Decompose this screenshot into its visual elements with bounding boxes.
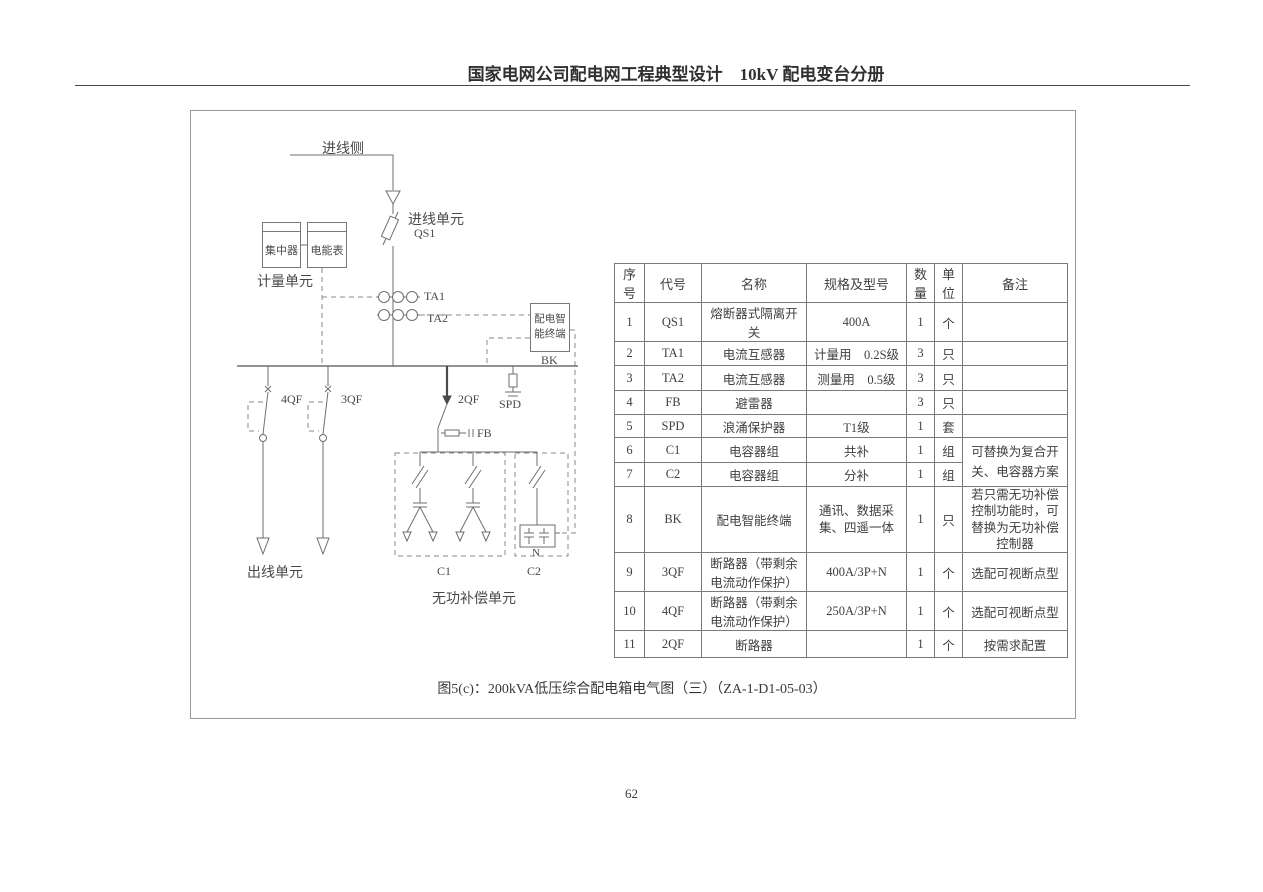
cell-qty: 3 — [907, 391, 935, 415]
qf2-label: 2QF — [458, 392, 479, 407]
capacitor-bank-c1 — [395, 452, 505, 556]
cell-unit: 只 — [935, 391, 963, 415]
cell-remark: 选配可视断点型 — [963, 592, 1068, 631]
breaker-3qf-symbol — [308, 366, 331, 554]
cell-spec: 测量用 0.5级 — [807, 366, 907, 391]
c1-label: C1 — [437, 564, 451, 579]
cell-seq: 2 — [615, 342, 645, 366]
ta1-label: TA1 — [424, 289, 445, 304]
cell-name: 电流互感器 — [702, 366, 807, 391]
reactive-comp-unit-label: 无功补偿单元 — [432, 588, 516, 608]
col-seq: 序号 — [615, 264, 645, 303]
component-table: 序号 代号 名称 规格及型号 数量 单位 备注 1 QS1 熔断器式隔离开关 4… — [614, 263, 1068, 658]
document-page: 国家电网公司配电网工程典型设计 10kV 配电变台分册 — [0, 0, 1263, 892]
cell-code: BK — [645, 487, 702, 553]
table-row: 5 SPD 浪涌保护器 T1级 1 套 — [615, 415, 1068, 438]
cell-unit: 只 — [935, 487, 963, 553]
cell-code: 2QF — [645, 631, 702, 658]
cell-name: 电容器组 — [702, 438, 807, 463]
current-transformer-ta1 — [377, 292, 420, 303]
cell-remark — [963, 415, 1068, 438]
cell-qty: 1 — [907, 553, 935, 592]
cell-name: 断路器（带剩余电流动作保护） — [702, 553, 807, 592]
bk-label: BK — [541, 353, 558, 368]
cell-code: FB — [645, 391, 702, 415]
cell-remark: 若只需无功补偿控制功能时，可替换为无功补偿控制器 — [963, 487, 1068, 553]
outgoing-unit-label: 出线单元 — [247, 562, 303, 582]
cell-name: 配电智能终端 — [702, 487, 807, 553]
cell-remark: 可替换为复合开关、电容器方案 — [963, 438, 1068, 487]
qf4-label: 4QF — [281, 392, 302, 407]
col-unit: 单位 — [935, 264, 963, 303]
cell-spec: 400A — [807, 303, 907, 342]
concentrator-label: 集中器 — [263, 232, 300, 267]
cell-qty: 1 — [907, 303, 935, 342]
cell-unit: 只 — [935, 342, 963, 366]
cell-spec: 400A/3P+N — [807, 553, 907, 592]
page-number: 62 — [0, 786, 1263, 802]
col-code: 代号 — [645, 264, 702, 303]
box-header-strip — [308, 223, 346, 232]
incoming-side-label: 进线侧 — [322, 138, 364, 158]
cell-code: TA2 — [645, 366, 702, 391]
cell-qty: 1 — [907, 487, 935, 553]
cell-seq: 11 — [615, 631, 645, 658]
cell-remark — [963, 366, 1068, 391]
cell-seq: 10 — [615, 592, 645, 631]
breaker-4qf-symbol — [248, 366, 271, 554]
cell-name: 断路器 — [702, 631, 807, 658]
cell-remark: 按需求配置 — [963, 631, 1068, 658]
table-row: 3 TA2 电流互感器 测量用 0.5级 3 只 — [615, 366, 1068, 391]
cell-name: 电流互感器 — [702, 342, 807, 366]
cell-seq: 8 — [615, 487, 645, 553]
ta2-label: TA2 — [427, 311, 448, 326]
cell-name: 电容器组 — [702, 463, 807, 487]
cell-seq: 9 — [615, 553, 645, 592]
col-name: 名称 — [702, 264, 807, 303]
figure-caption: 图5(c)：200kVA低压综合配电箱电气图（三）（ZA-1-D1-05-03） — [190, 678, 1074, 698]
cell-remark — [963, 391, 1068, 415]
cell-seq: 5 — [615, 415, 645, 438]
smart-terminal-box: 配电智能终端 — [530, 303, 570, 352]
cell-seq: 7 — [615, 463, 645, 487]
box-header-strip — [263, 223, 300, 232]
spd-label: SPD — [499, 397, 521, 412]
cell-name: 熔断器式隔离开关 — [702, 303, 807, 342]
cell-unit: 个 — [935, 303, 963, 342]
cell-qty: 3 — [907, 342, 935, 366]
cell-unit: 套 — [935, 415, 963, 438]
fb-label: FB — [477, 426, 492, 441]
cell-name: 断路器（带剩余电流动作保护） — [702, 592, 807, 631]
col-qty: 数量 — [907, 264, 935, 303]
table-row: 4 FB 避雷器 3 只 — [615, 391, 1068, 415]
table-row: 8 BK 配电智能终端 通讯、数据采集、四遥一体 1 只 若只需无功补偿控制功能… — [615, 487, 1068, 553]
neutral-label: N — [532, 547, 540, 559]
cell-remark — [963, 303, 1068, 342]
cell-remark: 选配可视断点型 — [963, 553, 1068, 592]
table-row: 1 QS1 熔断器式隔离开关 400A 1 个 — [615, 303, 1068, 342]
table-header-row: 序号 代号 名称 规格及型号 数量 单位 备注 — [615, 264, 1068, 303]
metering-unit-label: 计量单元 — [257, 271, 313, 291]
spd-symbol — [505, 366, 521, 396]
cell-seq: 1 — [615, 303, 645, 342]
cell-code: C2 — [645, 463, 702, 487]
cell-qty: 1 — [907, 592, 935, 631]
cell-unit: 只 — [935, 366, 963, 391]
energy-meter-label: 电能表 — [308, 232, 346, 267]
cell-remark — [963, 342, 1068, 366]
cell-seq: 4 — [615, 391, 645, 415]
cell-code: TA1 — [645, 342, 702, 366]
cell-qty: 1 — [907, 438, 935, 463]
qf3-label: 3QF — [341, 392, 362, 407]
qs1-label: QS1 — [414, 226, 435, 241]
col-spec: 规格及型号 — [807, 264, 907, 303]
energy-meter-box: 电能表 — [307, 222, 347, 268]
cell-qty: 1 — [907, 415, 935, 438]
cell-unit: 个 — [935, 592, 963, 631]
cell-code: 3QF — [645, 553, 702, 592]
cell-spec — [807, 391, 907, 415]
cell-qty: 1 — [907, 463, 935, 487]
cell-code: 4QF — [645, 592, 702, 631]
c2-label: C2 — [527, 564, 541, 579]
cell-name: 浪涌保护器 — [702, 415, 807, 438]
cell-name: 避雷器 — [702, 391, 807, 415]
cell-unit: 组 — [935, 463, 963, 487]
capacitor-bank-c2 — [515, 452, 568, 556]
cell-seq: 6 — [615, 438, 645, 463]
cell-spec: 250A/3P+N — [807, 592, 907, 631]
cell-qty: 1 — [907, 631, 935, 658]
cell-spec: 共补 — [807, 438, 907, 463]
page-header-title: 国家电网公司配电网工程典型设计 10kV 配电变台分册 — [468, 60, 885, 85]
cell-unit: 个 — [935, 553, 963, 592]
cell-spec: 通讯、数据采集、四遥一体 — [807, 487, 907, 553]
cell-code: QS1 — [645, 303, 702, 342]
table-row: 2 TA1 电流互感器 计量用 0.2S级 3 只 — [615, 342, 1068, 366]
cell-qty: 3 — [907, 366, 935, 391]
cell-unit: 个 — [935, 631, 963, 658]
col-remark: 备注 — [963, 264, 1068, 303]
cell-unit: 组 — [935, 438, 963, 463]
table-row: 10 4QF 断路器（带剩余电流动作保护） 250A/3P+N 1 个 选配可视… — [615, 592, 1068, 631]
cell-spec — [807, 631, 907, 658]
header-divider — [75, 85, 1190, 86]
cell-code: C1 — [645, 438, 702, 463]
cell-seq: 3 — [615, 366, 645, 391]
cell-spec: 分补 — [807, 463, 907, 487]
table-row: 11 2QF 断路器 1 个 按需求配置 — [615, 631, 1068, 658]
current-transformer-ta2 — [377, 310, 530, 321]
table-row: 6 C1 电容器组 共补 1 组 可替换为复合开关、电容器方案 — [615, 438, 1068, 463]
cell-spec: T1级 — [807, 415, 907, 438]
cell-code: SPD — [645, 415, 702, 438]
concentrator-box: 集中器 — [262, 222, 301, 268]
terminal-links — [487, 330, 575, 533]
cell-spec: 计量用 0.2S级 — [807, 342, 907, 366]
table-row: 9 3QF 断路器（带剩余电流动作保护） 400A/3P+N 1 个 选配可视断… — [615, 553, 1068, 592]
